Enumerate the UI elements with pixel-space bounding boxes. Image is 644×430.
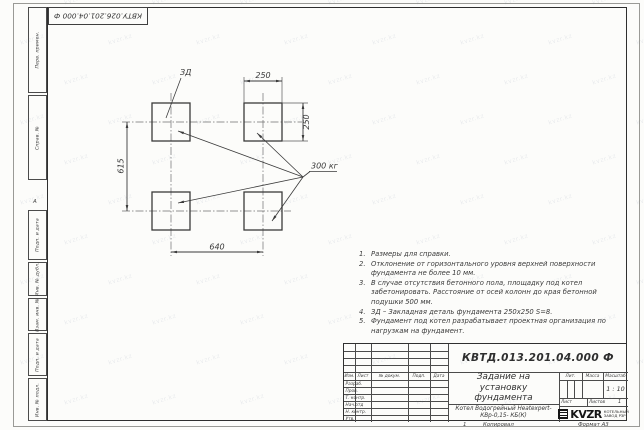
drawing-sheet: КВТУ.026.201.04.000 Ф Перв. примен. Спра… (0, 0, 644, 430)
load-label: 300 кг (311, 162, 339, 171)
dim-left-label: 615 (117, 158, 126, 173)
zone-marker: А (33, 199, 37, 205)
margin-box-inv-dubl: Инв. № дубл. (28, 262, 47, 296)
sheets-label: Листов (589, 400, 605, 405)
note-item: 3. В случае отсутствия бетонного пола, п… (356, 279, 620, 308)
footer-page-mark: 1 (463, 422, 466, 428)
mass-label: Масса (582, 374, 603, 379)
load-leader-arrows (178, 130, 277, 222)
watermark-text: kvzr.kz (0, 153, 1, 167)
top-stamp-text: КВТУ.026.201.04.000 Ф (54, 12, 142, 21)
extension-lines (244, 77, 308, 141)
row-prov: Пров. (346, 389, 359, 394)
col-data: Дата (430, 374, 448, 379)
dimension-lines (127, 81, 303, 252)
company-logo: KVZR КОТЕЛЬНЫЙ ЗАВОД РЗР (559, 406, 628, 422)
col-izm: Изм. (344, 374, 355, 379)
zd-leader-line (166, 78, 181, 118)
sheets-value: 1 (618, 399, 621, 405)
kvzr-logo-icon (558, 409, 568, 419)
watermark-text: kvzr.kz (0, 233, 1, 247)
margin-box-podp-data-1: Подп. и дата (28, 210, 47, 260)
margin-box-inv-podl: Инв. № подл. (28, 378, 47, 421)
note-item: 4. ЗД – Закладная деталь фундамента 250х… (356, 308, 620, 318)
row-nkontr: Н. контр. (346, 410, 367, 415)
footer-copy-label: Копировал (483, 422, 514, 428)
watermark-text: kvzr.kz (0, 393, 1, 407)
note-item: 1. Размеры для справки. (356, 250, 620, 260)
lit-label: Лит. (559, 374, 582, 379)
col-podp: Подп. (408, 374, 430, 379)
margin-box-sprav-no: Справ. № (28, 95, 47, 180)
top-rotated-stamp: КВТУ.026.201.04.000 Ф (48, 7, 148, 25)
watermark-text: kvzr.kz (0, 313, 1, 327)
col-list: Лист (355, 374, 371, 379)
margin-box-perv-primen: Перв. примен. (28, 7, 47, 93)
product-name: Котел Водогрейный Heatexpert-КВр-0,15- К… (448, 404, 559, 422)
dim-right-label: 250 (302, 114, 311, 129)
scale-label: Масштаб (603, 374, 628, 379)
row-utv: Утв. (346, 417, 355, 422)
dim-top-label: 250 (255, 71, 270, 80)
row-razrab: Разраб. (346, 382, 363, 387)
dim-bottom-label: 640 (209, 243, 224, 252)
title-block: КВТД.013.201.04.000 Ф Изм. Лист № докум.… (343, 343, 627, 421)
col-dokum: № докум. (371, 374, 408, 379)
sheet-label: Лист (561, 400, 572, 405)
scale-value: 1 : 10 (603, 380, 628, 398)
row-nachotd: Нач.отд (346, 403, 364, 408)
embedded-detail-label: ЗД (180, 68, 191, 77)
note-item: 2. Отклонение от горизонтального уровня … (356, 260, 620, 279)
document-title: Задание на установку фундамента (448, 372, 559, 404)
foundation-plan-drawing: 250 250 615 640 ЗД 300 кг (95, 55, 345, 270)
row-tkontr: Т. контр. (346, 396, 366, 401)
center-lines (122, 93, 302, 256)
doc-number: КВТД.013.201.04.000 Ф (448, 344, 628, 372)
company-name: КОТЕЛЬНЫЙ ЗАВОД РЗР (604, 410, 629, 418)
kvzr-logo-text: KVZR (570, 408, 601, 421)
load-leader-lines (178, 131, 337, 221)
note-item: 5. Фундамент под котел разрабатывает про… (356, 317, 620, 336)
watermark-text: kvzr.kz (0, 0, 1, 6)
margin-box-vzam-inv: Взам. инв. № (28, 298, 47, 331)
watermark-text: kvzr.kz (0, 73, 1, 87)
margin-box-podp-data-2: Подп. и дата (28, 333, 47, 376)
footer-format-label: Формат А3 (578, 422, 609, 428)
notes-list: 1. Размеры для справки. 2. Отклонение от… (356, 250, 620, 336)
